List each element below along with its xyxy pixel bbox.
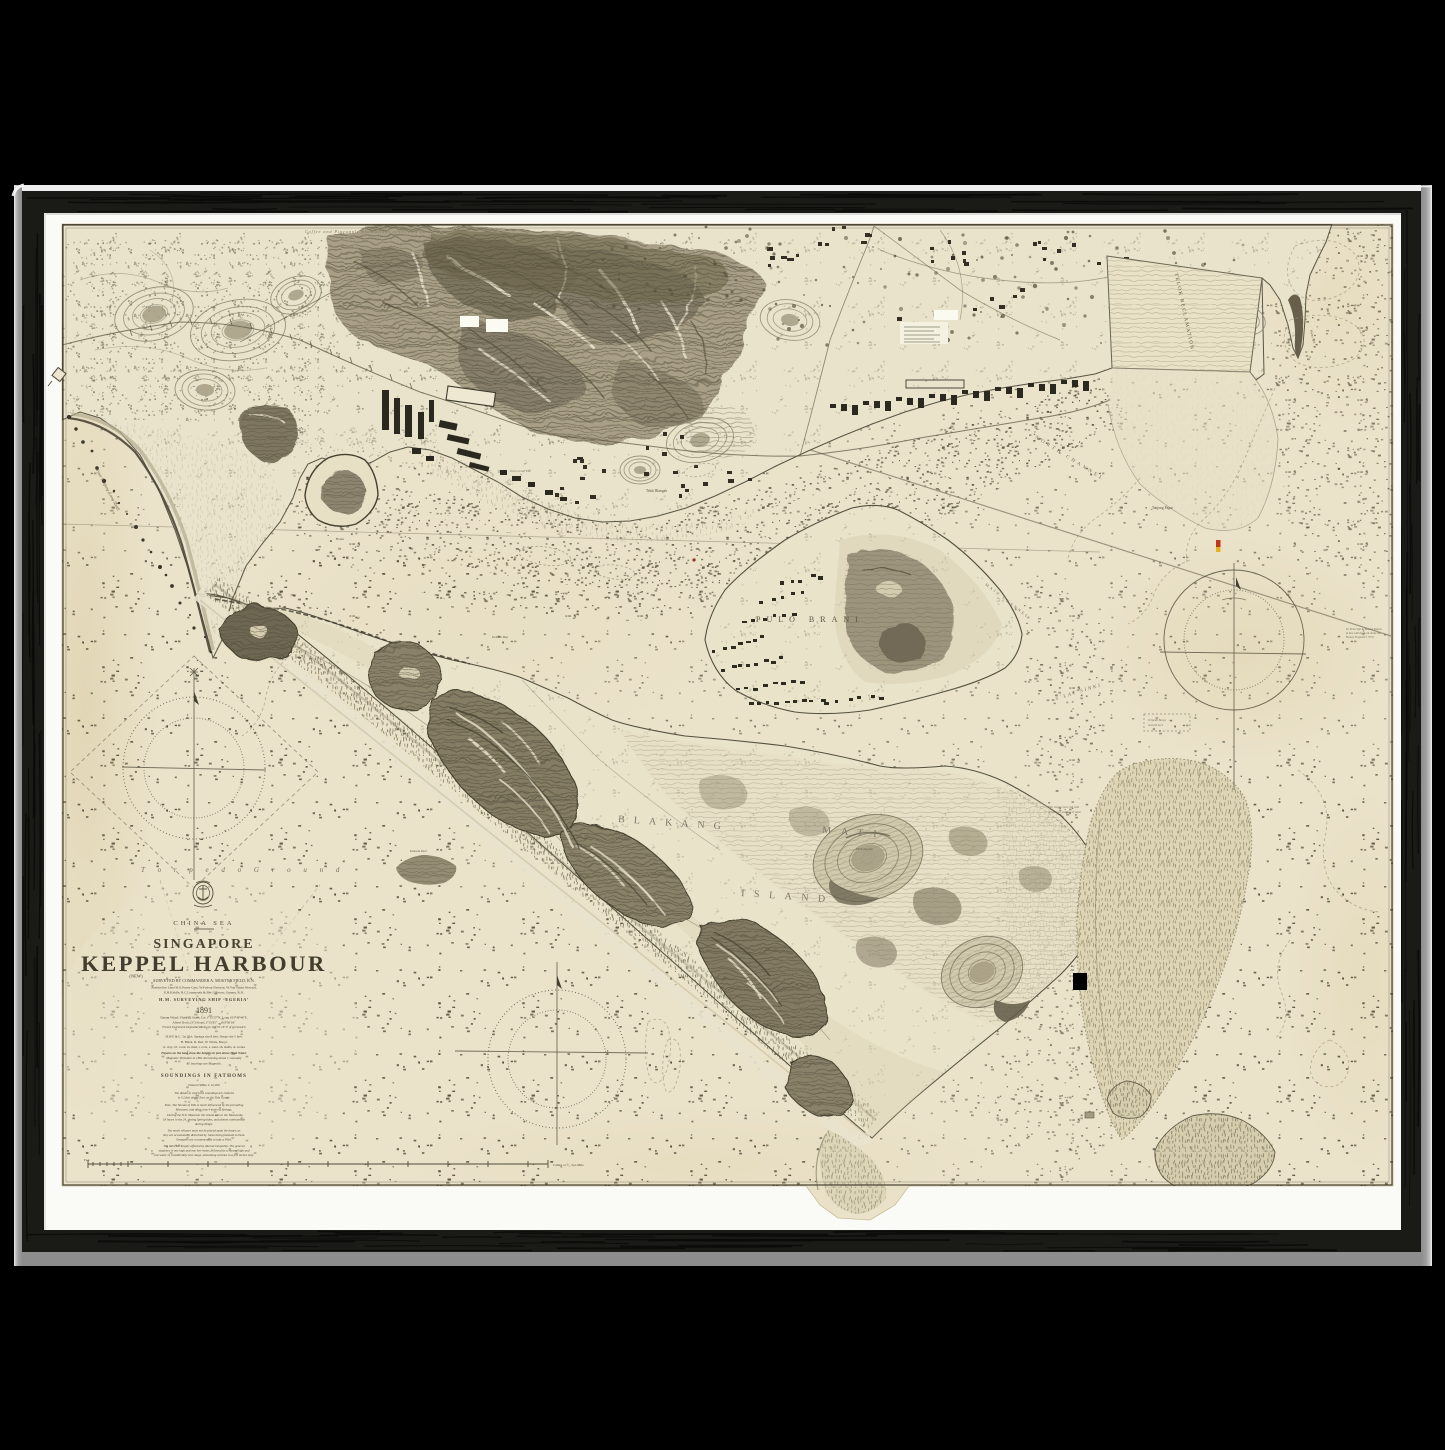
svg-text:Telok Blangah: Telok Blangah xyxy=(646,489,667,493)
svg-text:Hantu: Hantu xyxy=(336,537,345,541)
svg-text:Imbiah Bay: Imbiah Bay xyxy=(491,635,509,639)
svg-text:SOUNDINGS IN FATHOMS: SOUNDINGS IN FATHOMS xyxy=(161,1074,247,1079)
svg-text:Flat rough coral reef with: Flat rough coral reef with xyxy=(1047,805,1080,809)
svg-text:The tides are largely affected: The tides are largely affected by diurna… xyxy=(163,1144,244,1148)
svg-text:Figures on the land show the h: Figures on the land show the heights in … xyxy=(161,1051,247,1055)
svg-text:Tanjong Pagar: Tanjong Pagar xyxy=(1152,506,1174,510)
svg-text:Strangers are recommended to t: Strangers are recommended to take a Pilo… xyxy=(176,1138,232,1142)
svg-text:KEPPEL HARBOUR: KEPPEL HARBOUR xyxy=(81,951,327,976)
svg-text:T o r p e d o G r o u n d: T o r p e d o G r o u n d xyxy=(141,866,345,874)
svg-text:Feet: Feet xyxy=(84,1158,90,1162)
svg-text:is 3.2 feet above Zero on the: is 3.2 feet above Zero on the Tide Gauge… xyxy=(178,1096,231,1100)
svg-text:occasional patches of sand: occasional patches of sand xyxy=(1048,810,1081,814)
svg-text:Bukit Chermin: Bukit Chermin xyxy=(268,435,287,439)
svg-text:Mt Imbiah: Mt Imbiah xyxy=(400,665,414,669)
svg-text:W. Elder Spit & Beacon Rapids: W. Elder Spit & Beacon Rapids xyxy=(1346,628,1381,631)
svg-text:Palawan Reef: Palawan Reef xyxy=(410,849,427,853)
svg-text:they are occasionally disturbe: they are occasionally disturbed by Junks… xyxy=(163,1133,245,1137)
svg-text:The datum to which the soundin: The datum to which the soundings are red… xyxy=(174,1091,234,1095)
svg-text:All bearings are Magnetic.: All bearings are Magnetic. xyxy=(185,1062,222,1066)
svg-text:during Neaps.: during Neaps. xyxy=(195,1122,213,1126)
svg-text:in line with the Rock under th: in line with the Rock under the xyxy=(1346,632,1381,635)
svg-text:CHINA SEA: CHINA SEA xyxy=(173,920,234,927)
svg-text:During the N.E. Monsoon the st: During the N.E. Monsoon the stream sets … xyxy=(166,1113,241,1117)
svg-text:(NEW): (NEW) xyxy=(129,974,143,979)
svg-text:Note. The Stream of Tide is mu: Note. The Stream of Tide is much influen… xyxy=(164,1103,244,1107)
svg-text:Mt Serapong: Mt Serapong xyxy=(856,847,873,851)
svg-text:Torpedo Buoys: Torpedo Buoys xyxy=(1148,718,1167,722)
svg-text:SINGAPORE: SINGAPORE xyxy=(153,937,254,952)
svg-text:moored here: moored here xyxy=(1148,723,1164,727)
svg-text:French Instrument Depositary b: French Instrument Depositary being in 10… xyxy=(161,1025,246,1029)
svg-text:Cables or ¹∕₁₀ Sea Mile: Cables or ¹∕₁₀ Sea Mile xyxy=(553,1163,584,1167)
svg-text:1891: 1891 xyxy=(196,1006,212,1015)
svg-text:Magnetic Variation in 1891 dec: Magnetic Variation in 1891 decreasing ab… xyxy=(165,1056,242,1060)
svg-text:Coffee and Pineapple plantatio: Coffee and Pineapple plantations cover t… xyxy=(305,229,431,234)
svg-text:Dries at half Ebb: Dries at half Ebb xyxy=(509,469,531,473)
svg-text:H.M. SURVEYING SHIP ‘EGERIA’: H.M. SURVEYING SHIP ‘EGERIA’ xyxy=(159,997,249,1002)
svg-text:Battery Flagstaff S 78 W: Battery Flagstaff S 78 W xyxy=(1346,636,1374,639)
svg-text:PULO BRANI: PULO BRANI xyxy=(756,615,864,624)
